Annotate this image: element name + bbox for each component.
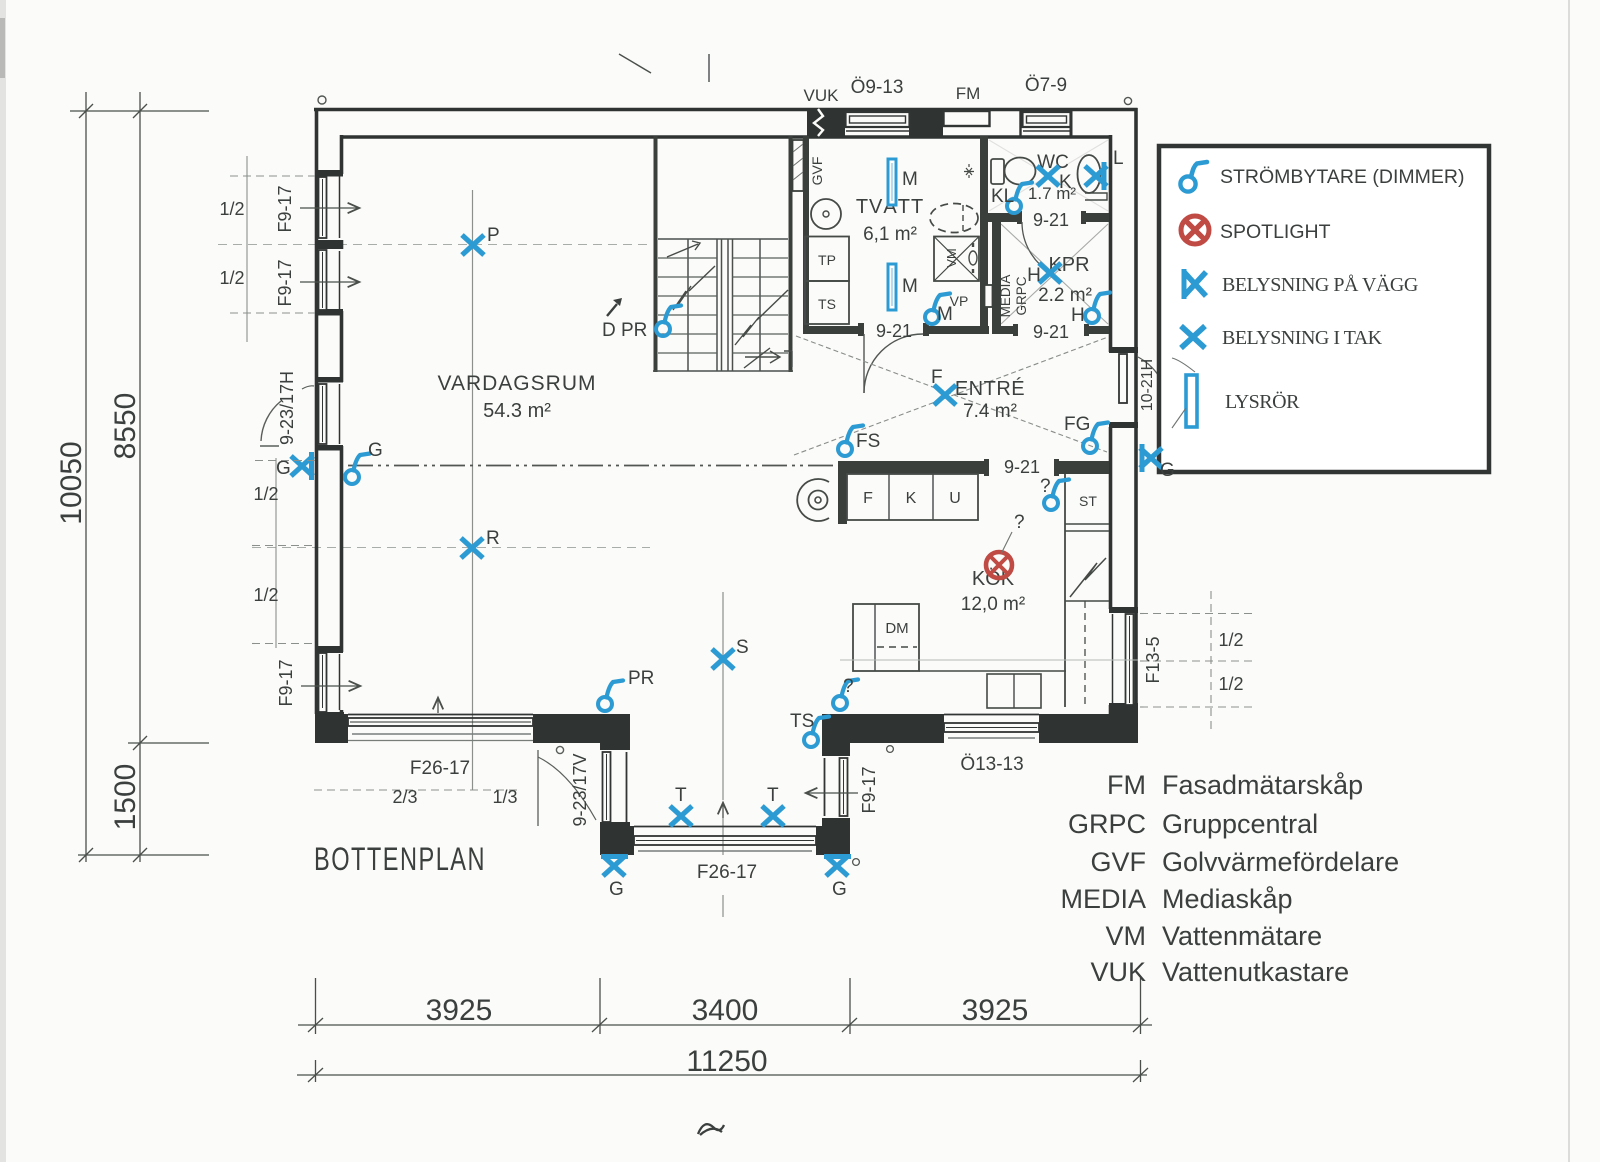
svg-text:T: T	[675, 785, 687, 806]
svg-text:F9-17: F9-17	[276, 659, 296, 706]
svg-text:G: G	[368, 440, 383, 461]
svg-text:Ö7-9: Ö7-9	[1025, 75, 1067, 96]
svg-text:D PR: D PR	[602, 320, 647, 341]
svg-text:ST: ST	[1079, 493, 1097, 509]
svg-text:?: ?	[1014, 512, 1025, 533]
svg-text:1/2: 1/2	[219, 199, 244, 219]
svg-text:Vattenutkastare: Vattenutkastare	[1162, 957, 1349, 987]
svg-text:9-21: 9-21	[1033, 322, 1069, 342]
svg-text:9-23/17H: 9-23/17H	[277, 371, 297, 445]
svg-text:KL: KL	[991, 186, 1014, 207]
svg-text:MEDIA: MEDIA	[998, 275, 1013, 318]
svg-text:1/2: 1/2	[253, 585, 278, 605]
svg-text:Ö13-13: Ö13-13	[960, 754, 1023, 775]
svg-text:LYSRÖR: LYSRÖR	[1225, 390, 1300, 413]
svg-text:2.2 m²: 2.2 m²	[1038, 285, 1092, 306]
svg-text:1/2: 1/2	[1218, 630, 1243, 650]
svg-text:SPOTLIGHT: SPOTLIGHT	[1220, 221, 1331, 243]
svg-text:GVF: GVF	[1090, 847, 1146, 877]
svg-text:STRÖMBYTARE (DIMMER): STRÖMBYTARE (DIMMER)	[1220, 166, 1464, 188]
svg-text:MEDIA: MEDIA	[1060, 884, 1146, 914]
svg-text:ENTRÉ: ENTRÉ	[955, 377, 1025, 400]
svg-text:Fasadmätarskåp: Fasadmätarskåp	[1162, 770, 1363, 800]
svg-text:TS: TS	[818, 296, 836, 312]
svg-text:F26-17: F26-17	[410, 758, 470, 779]
svg-text:F: F	[931, 367, 943, 388]
svg-text:1/2: 1/2	[219, 268, 244, 288]
svg-text:2/3: 2/3	[392, 787, 417, 807]
svg-text:H: H	[1027, 265, 1041, 286]
svg-text:9-21: 9-21	[1033, 210, 1069, 230]
svg-text:VM: VM	[944, 248, 959, 268]
svg-text:F: F	[863, 490, 873, 507]
svg-text:M: M	[902, 169, 918, 190]
svg-text:3925: 3925	[962, 994, 1029, 1027]
svg-text:TP: TP	[818, 252, 836, 268]
svg-text:6,1 m²: 6,1 m²	[863, 224, 917, 245]
svg-text:?: ?	[1040, 476, 1051, 497]
svg-text:DM: DM	[885, 620, 908, 637]
svg-text:H: H	[1071, 305, 1085, 326]
svg-text:S: S	[736, 637, 749, 658]
svg-text:FS: FS	[856, 431, 880, 452]
svg-text:10-21H: 10-21H	[1139, 359, 1156, 411]
svg-text:3925: 3925	[426, 994, 493, 1027]
svg-text:VM: VM	[1106, 921, 1147, 951]
svg-text:U: U	[949, 490, 961, 507]
svg-text:9-23/17V: 9-23/17V	[570, 753, 590, 826]
svg-text:F26-17: F26-17	[697, 862, 757, 883]
svg-text:TS: TS	[790, 711, 814, 732]
svg-text:PR: PR	[628, 668, 654, 689]
svg-text:Ö9-13: Ö9-13	[851, 77, 904, 98]
svg-text:1/3: 1/3	[492, 787, 517, 807]
svg-text:1500: 1500	[109, 764, 142, 831]
svg-text:BELYSNING PÅ VÄGG: BELYSNING PÅ VÄGG	[1222, 273, 1418, 296]
svg-text:?: ?	[843, 676, 854, 697]
svg-text:9-21: 9-21	[1004, 457, 1040, 477]
svg-text:9-21: 9-21	[876, 321, 912, 341]
svg-text:BELYSNING I TAK: BELYSNING I TAK	[1222, 327, 1383, 349]
svg-text:K: K	[1059, 172, 1072, 193]
svg-text:VUK: VUK	[1090, 957, 1146, 987]
svg-text:VARDAGSRUM: VARDAGSRUM	[438, 372, 597, 395]
svg-text:Gruppcentral: Gruppcentral	[1162, 809, 1318, 839]
svg-text:VUK: VUK	[804, 86, 840, 105]
svg-text:F9-17: F9-17	[275, 259, 295, 306]
svg-text:P: P	[487, 225, 500, 246]
svg-text:FG: FG	[1064, 414, 1090, 435]
svg-text:F13-5: F13-5	[1143, 636, 1163, 683]
svg-text:Golvvärmefördelare: Golvvärmefördelare	[1162, 847, 1399, 877]
svg-text:10050: 10050	[55, 441, 88, 524]
svg-text:BOTTENPLAN: BOTTENPLAN	[314, 841, 486, 877]
svg-text:F9-17: F9-17	[859, 766, 879, 813]
svg-text:R: R	[486, 528, 500, 549]
svg-text:3400: 3400	[692, 994, 759, 1027]
svg-text:1/2: 1/2	[1218, 674, 1243, 694]
svg-text:12,0 m²: 12,0 m²	[961, 594, 1025, 615]
svg-text:FM: FM	[956, 84, 981, 103]
svg-text:Mediaskåp: Mediaskåp	[1162, 884, 1293, 914]
svg-text:K: K	[906, 490, 917, 507]
svg-text:T: T	[767, 785, 779, 806]
svg-text:11250: 11250	[686, 1045, 767, 1078]
svg-text:Vattenmätare: Vattenmätare	[1162, 921, 1322, 951]
svg-text:FM: FM	[1107, 770, 1146, 800]
svg-text:G: G	[832, 879, 847, 900]
svg-text:54.3 m²: 54.3 m²	[483, 400, 551, 422]
svg-text:GRPC: GRPC	[1068, 809, 1146, 839]
svg-text:G: G	[609, 879, 624, 900]
svg-text:F9-17: F9-17	[275, 185, 295, 232]
svg-text:KPR: KPR	[1048, 254, 1089, 276]
svg-text:L: L	[1113, 148, 1124, 169]
svg-text:M: M	[937, 304, 953, 325]
svg-text:7.4 m²: 7.4 m²	[963, 401, 1017, 422]
svg-text:1/2: 1/2	[253, 484, 278, 504]
svg-text:GVF: GVF	[809, 157, 825, 186]
svg-text:G: G	[1160, 460, 1175, 481]
svg-text:G: G	[276, 458, 291, 479]
svg-text:M: M	[902, 276, 918, 297]
svg-text:8550: 8550	[109, 393, 142, 460]
